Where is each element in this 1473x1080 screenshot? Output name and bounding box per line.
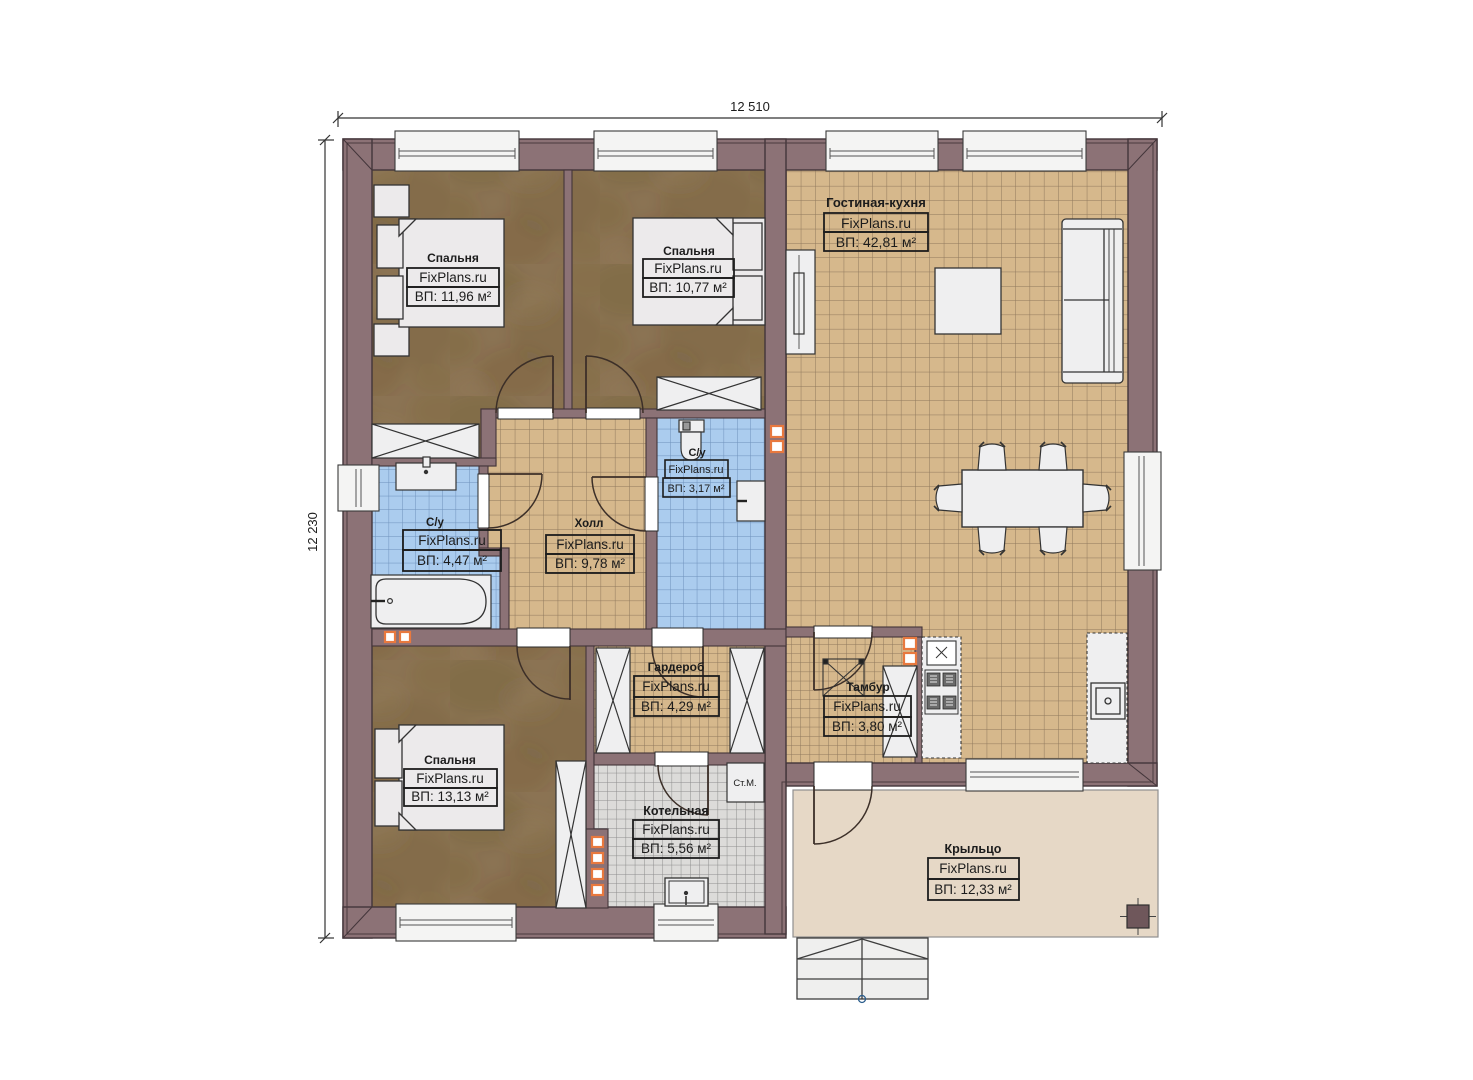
svg-text:FixPlans.ru: FixPlans.ru — [416, 771, 484, 786]
svg-text:FixPlans.ru: FixPlans.ru — [642, 679, 710, 694]
svg-text:С/у: С/у — [426, 517, 445, 529]
svg-text:ВП: 4,29 м²: ВП: 4,29 м² — [641, 699, 712, 714]
svg-text:FixPlans.ru: FixPlans.ru — [668, 464, 723, 476]
svg-text:Крыльцо: Крыльцо — [945, 842, 1002, 856]
svg-text:12 230: 12 230 — [305, 512, 320, 552]
svg-text:Тамбур: Тамбур — [846, 680, 890, 694]
svg-text:FixPlans.ru: FixPlans.ru — [654, 261, 722, 276]
svg-text:Спальня: Спальня — [427, 251, 479, 265]
svg-text:ВП: 3,17 м²: ВП: 3,17 м² — [667, 483, 724, 495]
svg-text:ВП: 10,77 м²: ВП: 10,77 м² — [649, 280, 727, 295]
svg-text:Спальня: Спальня — [663, 244, 715, 258]
svg-text:FixPlans.ru: FixPlans.ru — [419, 270, 487, 285]
svg-text:ВП: 3,80 м²: ВП: 3,80 м² — [832, 719, 903, 734]
svg-text:FixPlans.ru: FixPlans.ru — [642, 822, 710, 837]
svg-text:ВП: 13,13 м²: ВП: 13,13 м² — [411, 789, 489, 804]
svg-text:ВП: 12,33 м²: ВП: 12,33 м² — [934, 882, 1012, 897]
svg-text:Ст.М.: Ст.М. — [733, 778, 756, 789]
svg-text:Гостиная-кухня: Гостиная-кухня — [826, 195, 926, 210]
svg-text:Холл: Холл — [575, 518, 604, 530]
svg-text:ВП: 9,78 м²: ВП: 9,78 м² — [555, 556, 626, 571]
svg-text:FixPlans.ru: FixPlans.ru — [418, 533, 486, 548]
svg-text:С/у: С/у — [688, 447, 706, 459]
svg-text:ВП: 5,56 м²: ВП: 5,56 м² — [641, 841, 712, 856]
svg-text:FixPlans.ru: FixPlans.ru — [556, 537, 624, 552]
svg-text:Котельная: Котельная — [643, 804, 708, 818]
svg-text:Спальня: Спальня — [424, 753, 476, 767]
svg-text:12 510: 12 510 — [730, 99, 770, 114]
svg-text:ВП: 11,96 м²: ВП: 11,96 м² — [415, 289, 492, 304]
svg-text:FixPlans.ru: FixPlans.ru — [841, 215, 911, 231]
svg-text:Гардероб: Гардероб — [648, 660, 705, 674]
svg-text:ВП: 42,81 м²: ВП: 42,81 м² — [836, 234, 917, 250]
svg-text:FixPlans.ru: FixPlans.ru — [939, 861, 1007, 876]
svg-text:ВП: 4,47 м²: ВП: 4,47 м² — [417, 553, 488, 568]
svg-text:FixPlans.ru: FixPlans.ru — [833, 699, 901, 714]
